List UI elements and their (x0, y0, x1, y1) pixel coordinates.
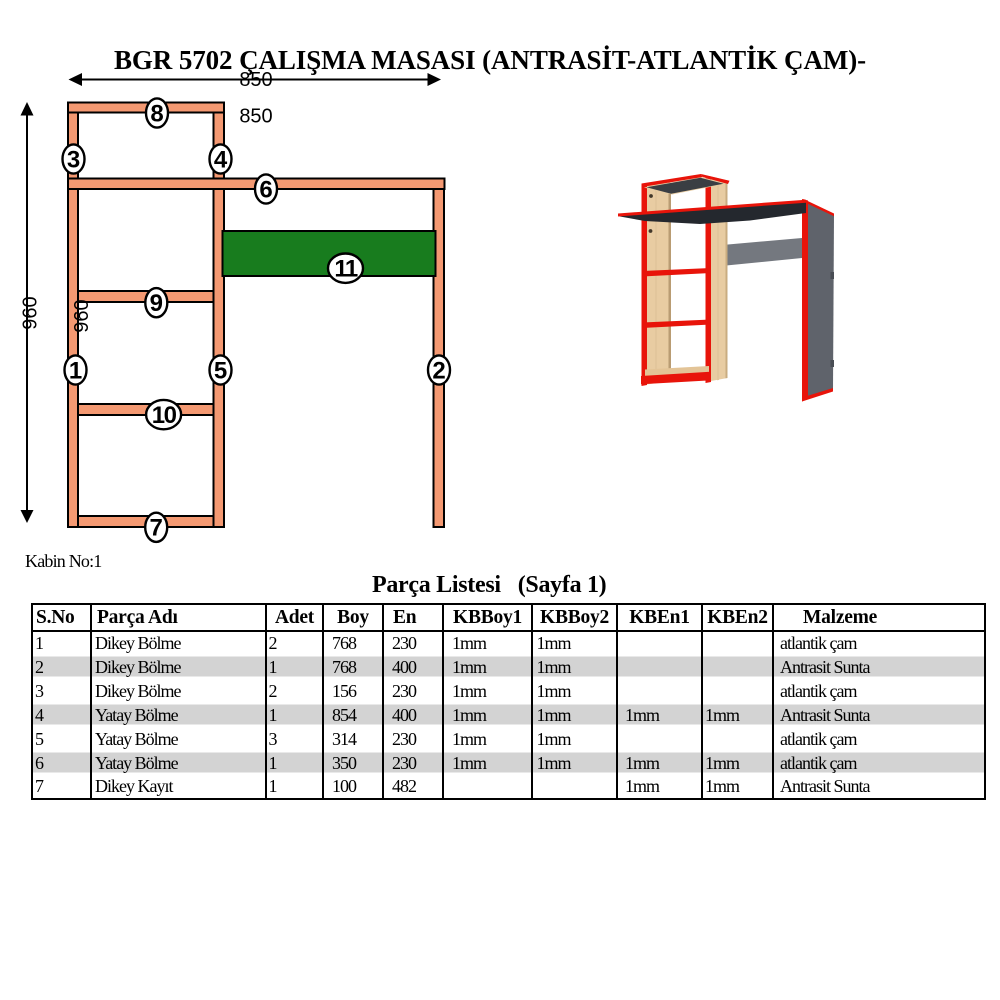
svg-text:960: 960 (71, 299, 93, 332)
svg-text:10: 10 (152, 402, 177, 429)
svg-text:960: 960 (20, 296, 42, 329)
svg-text:9: 9 (150, 290, 163, 317)
svg-text:11: 11 (334, 256, 358, 283)
svg-text:5: 5 (214, 357, 227, 384)
svg-text:850: 850 (239, 106, 272, 128)
svg-text:2: 2 (432, 357, 445, 384)
svg-text:6: 6 (259, 176, 272, 203)
svg-text:4: 4 (214, 146, 228, 173)
svg-text:8: 8 (150, 100, 163, 127)
svg-text:1: 1 (69, 357, 82, 384)
svg-text:850: 850 (239, 69, 272, 91)
svg-text:7: 7 (150, 515, 163, 542)
svg-text:3: 3 (67, 146, 80, 173)
